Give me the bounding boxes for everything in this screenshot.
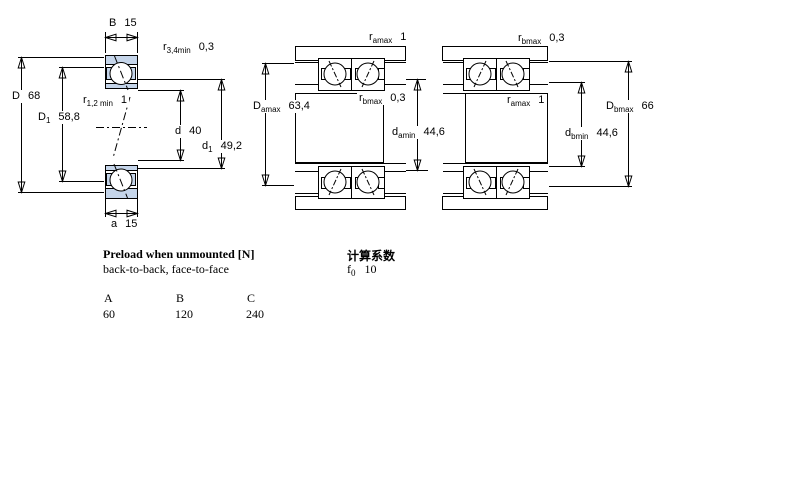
dim-label-a: a15 <box>109 218 139 231</box>
preload-value-C: 240 <box>246 307 264 322</box>
dim-label-damin: damin44,6 <box>390 126 447 139</box>
dim-label-ramax-right: ramax1 <box>505 94 546 107</box>
bearing-datasheet-figure: B15 r3,4min0,3 D68 D158,8 r1,2 min1 d40 … <box>0 0 800 500</box>
dim-label-rbmax-middle: rbmax0,3 <box>357 92 408 105</box>
preload-col-C: C <box>247 291 255 306</box>
dim-label-d1: d149,2 <box>200 140 244 153</box>
preload-col-B: B <box>176 291 184 306</box>
dim-label-Damax: Damax63,4 <box>251 100 312 113</box>
dim-label-Dbmax: Dbmax66 <box>604 100 656 113</box>
dim-label-r12min: r1,2 min1 <box>81 94 129 107</box>
dim-label-ramax-middle: ramax1 <box>367 31 408 44</box>
dim-label-D1: D158,8 <box>36 111 82 124</box>
preload-value-A: 60 <box>103 307 115 322</box>
dim-label-dbmin: dbmin44,6 <box>563 127 620 140</box>
preload-subtitle: back-to-back, face-to-face <box>103 262 229 277</box>
dim-label-B: B15 <box>107 17 139 30</box>
preload-col-A: A <box>104 291 113 306</box>
dim-label-D: D68 <box>10 90 42 103</box>
calculation-factor-f0: f010 <box>347 262 377 277</box>
dim-label-d: d40 <box>173 125 203 138</box>
preload-title: Preload when unmounted [N] <box>103 247 254 262</box>
dim-label-r34min: r3,4min0,3 <box>161 41 216 54</box>
dim-label-rbmax-right: rbmax0,3 <box>516 32 567 45</box>
preload-value-B: 120 <box>175 307 193 322</box>
